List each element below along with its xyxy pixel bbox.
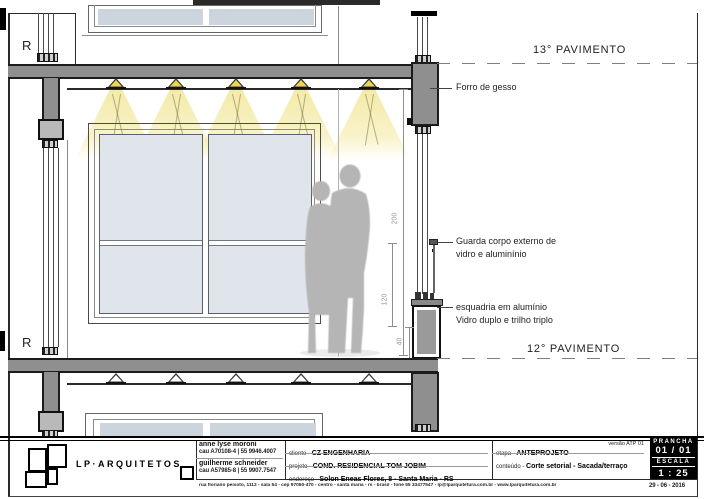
- jamb-line: [67, 140, 68, 358]
- level-label-13: 13° PAVIMENTO: [533, 44, 626, 56]
- light-base: [166, 87, 186, 89]
- parapet-section: [412, 305, 441, 359]
- prancha-value: 01 / 01: [650, 445, 697, 456]
- stage-cell: etapa - ANTEPROJETO versão ATP 01 conteú…: [496, 441, 646, 479]
- architectural-section-sheet: R R: [0, 0, 704, 499]
- edge-text-r: R: [22, 38, 31, 53]
- annotation-guarda-corpo: vidro e aluminínio: [456, 249, 527, 259]
- project-fields-cell: cliente - CZ ENGENHARIA projeto - COND. …: [289, 441, 489, 479]
- logo-small-square: [180, 466, 194, 480]
- sheet-bottom-line: [8, 496, 697, 497]
- esquadria-profile: [423, 292, 428, 299]
- leader-line: [438, 242, 453, 243]
- logo-shape: [47, 444, 67, 468]
- dimension-label: 200: [391, 213, 398, 225]
- upper-floor-glass: [209, 9, 314, 25]
- firm-name: LP·ARQUITETOS: [76, 459, 182, 469]
- cell-separator: [196, 441, 197, 479]
- escala-label: ESCALA: [650, 459, 697, 465]
- level-line-13: [437, 63, 697, 64]
- esquadria-profile: [415, 292, 421, 299]
- field-value: Corte setorial - Sacada/terraço: [526, 463, 628, 470]
- leader-line: [430, 88, 452, 89]
- frame-connector: [42, 140, 58, 148]
- light-base: [106, 382, 126, 384]
- leader-line: [437, 307, 453, 308]
- escala-value: 1 : 25: [650, 468, 697, 479]
- railing-mullions: [417, 17, 432, 55]
- sheet-date: 29 - 06 - 2016: [649, 483, 685, 489]
- row-separator: [492, 453, 644, 454]
- light-base: [359, 87, 379, 89]
- architects-cell: anne lyse moroni cau A70108-4 | 55 9946.…: [199, 441, 283, 479]
- box-divider: [652, 457, 695, 458]
- dimension-tick: [388, 243, 397, 244]
- window-mullions: [38, 13, 56, 53]
- dimension-line: [409, 327, 410, 358]
- field-label: conteúdo: [496, 464, 521, 470]
- dimension-tick: [399, 89, 408, 90]
- left-edge-stub: [0, 331, 5, 351]
- window-mid-rail: [100, 240, 202, 246]
- upper-sill-line: [82, 35, 328, 36]
- wall-outer-line: [8, 13, 10, 497]
- dimension-line: [403, 89, 404, 356]
- sheet-number-box: PRANCHA 01 / 01 ESCALA 1 : 25: [650, 438, 697, 479]
- slab-upper: [8, 64, 438, 79]
- office-address: rua floriano peixoto, 1112 - sala 54 - c…: [199, 483, 647, 488]
- annotation-guarda-corpo: Guarda corpo externo de: [456, 236, 556, 246]
- logo-shape: [47, 468, 58, 485]
- sheet-right-border: [697, 13, 698, 497]
- frame-connector: [415, 126, 431, 134]
- architect-registration: cau A70108-4 | 55 9946.4007: [199, 449, 276, 455]
- row-separator: [285, 466, 488, 467]
- parapet-column-right-upper: [411, 62, 439, 126]
- dimension-line: [392, 243, 393, 327]
- light-base: [226, 382, 246, 384]
- light-base: [106, 87, 126, 89]
- cell-separator: [285, 441, 286, 479]
- window-mullions: [43, 148, 59, 347]
- lower-floor-glass: [100, 423, 203, 437]
- dimension-tick: [405, 327, 414, 328]
- light-base: [359, 382, 379, 384]
- frame-connector: [37, 53, 58, 62]
- upper-floor-glass: [98, 9, 203, 25]
- titleblock-top-line: [0, 436, 704, 438]
- wall-edge-line: [338, 6, 339, 64]
- beam-end-box-left: [38, 411, 64, 432]
- architect-name: guilherme schneider: [199, 460, 267, 467]
- slab-lower: [8, 358, 438, 373]
- left-edge-stub: [0, 8, 6, 30]
- dimension-label: 40: [396, 338, 403, 346]
- row-separator: [196, 458, 283, 459]
- light-base: [226, 87, 246, 89]
- downstand-beam-left: [42, 78, 60, 121]
- window-pane-left: [99, 134, 203, 314]
- level-label-12: 12° PAVIMENTO: [527, 343, 620, 355]
- architect-name: anne lyse moroni: [199, 441, 257, 448]
- parapet-column-right-lower: [411, 372, 439, 432]
- version-label: versão ATP 01: [608, 441, 644, 447]
- level-line-12: [437, 358, 697, 359]
- railing-cap-bar: [411, 11, 437, 16]
- field-conteudo: conteúdo - Corte setorial - Sacada/terra…: [496, 455, 628, 473]
- dimension-tick: [399, 355, 408, 356]
- logo-shape: [25, 471, 47, 488]
- field-value: Solon Eneas Flores, 8 - Santa Maria - RS: [319, 476, 453, 483]
- parapet-fill: [417, 310, 436, 354]
- dimension-tick: [388, 326, 397, 327]
- downstand-beam-left: [42, 372, 60, 413]
- annotation-esquadria: Vidro duplo e trilho triplo: [456, 315, 553, 325]
- logo-shape: [28, 448, 47, 472]
- beam-end-box-left: [38, 119, 64, 140]
- annotation-forro: Forro de gesso: [456, 82, 517, 92]
- couple-silhouette: [286, 163, 386, 356]
- wall-inner-line: [75, 13, 76, 64]
- column-tick: [407, 118, 412, 125]
- architect-registration: cau A57985-8 | 55 9907.7547: [199, 468, 276, 474]
- box-divider: [652, 466, 695, 467]
- light-base: [291, 87, 311, 89]
- cell-separator: [492, 441, 493, 479]
- annotation-esquadria: esquadria em alumínio: [456, 302, 547, 312]
- light-base: [291, 382, 311, 384]
- balcony-glazing-mullions: [417, 134, 432, 294]
- frame-connector: [415, 424, 431, 432]
- row-separator: [285, 453, 488, 454]
- guardrail-glass-line: [433, 245, 435, 293]
- edge-text-r: R: [22, 335, 31, 350]
- light-base: [166, 382, 186, 384]
- frame-connector: [42, 347, 58, 355]
- lower-floor-glass: [210, 423, 316, 437]
